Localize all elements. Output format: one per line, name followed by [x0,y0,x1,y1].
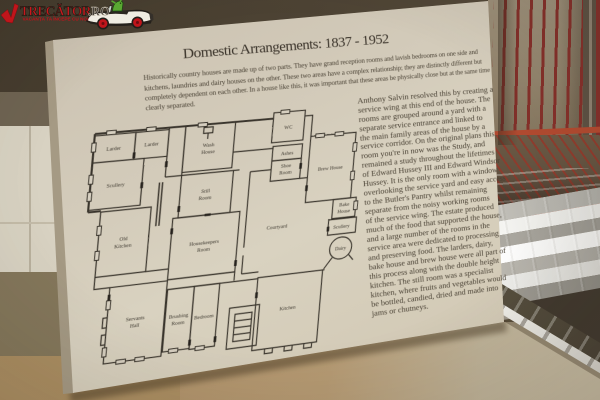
svg-text:House: House [201,149,215,156]
svg-text:Scullery: Scullery [106,182,125,189]
svg-text:Old: Old [119,236,128,243]
svg-text:Brew House: Brew House [318,165,344,173]
svg-text:Dairy: Dairy [335,246,347,253]
svg-text:Room: Room [197,247,211,254]
svg-text:Ashes: Ashes [281,151,294,158]
svg-text:Shoe: Shoe [281,163,292,169]
svg-text:Kitchen: Kitchen [279,305,296,313]
svg-text:Servants: Servants [126,315,145,323]
svg-text:WC: WC [284,125,293,131]
svg-text:Brushing: Brushing [169,313,189,321]
svg-text:Still: Still [201,188,211,194]
svg-text:Room: Room [279,170,293,177]
svg-text:Kitchen: Kitchen [114,243,132,251]
svg-text:Wash: Wash [203,142,215,149]
svg-text:Larder: Larder [106,146,121,153]
svg-text:Room: Room [171,320,185,327]
svg-text:Scullery: Scullery [333,224,350,231]
svg-text:Courtyard: Courtyard [266,224,287,232]
svg-text:Room: Room [198,195,212,202]
svg-text:House: House [337,208,351,215]
svg-text:Bedroom: Bedroom [194,313,215,321]
svg-text:.RO: .RO [88,5,110,19]
svg-text:Bake: Bake [339,202,350,209]
svg-text:VACANȚA TA ÎNCEPE CU NOI: VACANȚA TA ÎNCEPE CU NOI [23,15,89,22]
svg-text:Larder: Larder [144,141,159,148]
svg-text:Hall: Hall [130,323,140,330]
